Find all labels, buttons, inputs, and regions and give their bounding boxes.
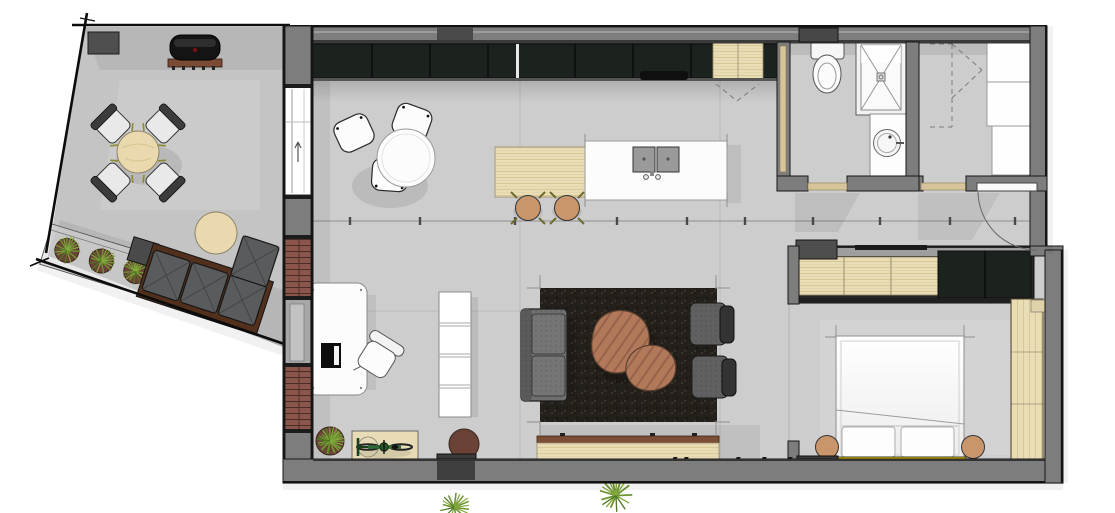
armchair xyxy=(690,303,734,345)
cistern-box xyxy=(799,28,838,42)
pillow xyxy=(901,427,954,457)
shower-drain xyxy=(877,73,885,81)
right-wall-upper xyxy=(1030,26,1047,254)
cabinet-gap xyxy=(516,44,519,78)
vanity-sink xyxy=(870,114,906,176)
storage-cabinet xyxy=(992,126,1031,175)
pocket-door xyxy=(780,46,786,172)
storage-box xyxy=(88,32,119,54)
faucet xyxy=(644,175,649,180)
kitchen-island xyxy=(585,141,727,200)
outer-shadow xyxy=(1063,250,1068,483)
kitchen-cabinet-run xyxy=(313,44,777,78)
tall-wardrobe xyxy=(1011,299,1045,462)
brick-section xyxy=(285,367,311,430)
left-wall xyxy=(283,26,313,462)
round-table xyxy=(377,129,435,187)
floor-plan-page: Apartment floor plan — top-down 3D rende… xyxy=(0,0,1115,513)
terrace-sliding-door xyxy=(285,87,311,195)
desk xyxy=(307,283,367,395)
right-wall-lower xyxy=(1045,250,1063,483)
pillow xyxy=(842,427,895,457)
coffee-table-small xyxy=(626,345,676,390)
shower xyxy=(856,40,906,115)
sofa xyxy=(521,309,575,401)
floor-plan-render: Apartment floor plan — top-down 3D rende… xyxy=(0,0,1115,513)
bar-stool xyxy=(511,192,545,224)
entry-inset xyxy=(437,461,475,480)
outdoor-round-table xyxy=(117,131,159,173)
top-wall-inset xyxy=(437,27,473,40)
storage-cabinet xyxy=(987,82,1031,126)
storage-door-threshold xyxy=(921,183,966,190)
sideboard xyxy=(537,433,719,462)
bicycle-on-mat xyxy=(352,431,418,462)
nightstand xyxy=(962,436,985,459)
brick-section xyxy=(285,238,311,297)
breakfast-table xyxy=(495,147,585,197)
wardrobe-top-box xyxy=(796,240,837,259)
storage-cabinet xyxy=(987,40,1031,82)
outer-shadow xyxy=(283,484,1063,490)
shelf-unit xyxy=(439,292,478,417)
bathroom-door-threshold xyxy=(808,183,847,190)
round-side-table xyxy=(195,212,237,254)
door-leaf xyxy=(977,183,1037,191)
armchair xyxy=(692,356,736,398)
bedroom-partition-wall xyxy=(788,246,799,304)
bar-stool xyxy=(550,192,584,224)
cooktop xyxy=(640,71,688,80)
bathroom-storage-divider-wall xyxy=(906,42,919,190)
bbq-grill xyxy=(168,35,222,70)
wardrobe-wood-section xyxy=(797,257,938,295)
outer-shadow xyxy=(1047,26,1053,254)
nightstand xyxy=(816,436,839,459)
wardrobe xyxy=(789,240,1034,303)
bottom-wall xyxy=(283,459,1063,484)
